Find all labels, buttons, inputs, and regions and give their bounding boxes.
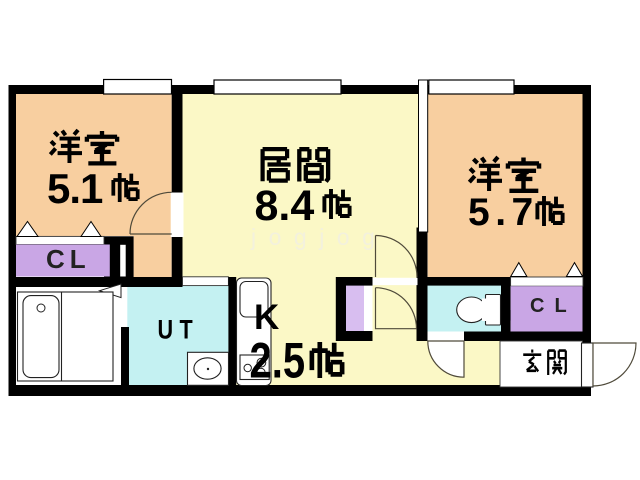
svg-text:K: K [254, 298, 279, 337]
svg-text:2.5: 2.5 [250, 332, 306, 388]
svg-text:CL: CL [530, 295, 577, 317]
svg-text:CL: CL [46, 244, 91, 274]
svg-text:UT: UT [158, 315, 200, 345]
svg-text:5.7: 5.7 [468, 191, 539, 234]
svg-text:5.1: 5.1 [47, 165, 103, 212]
svg-text:8.4: 8.4 [255, 182, 315, 230]
